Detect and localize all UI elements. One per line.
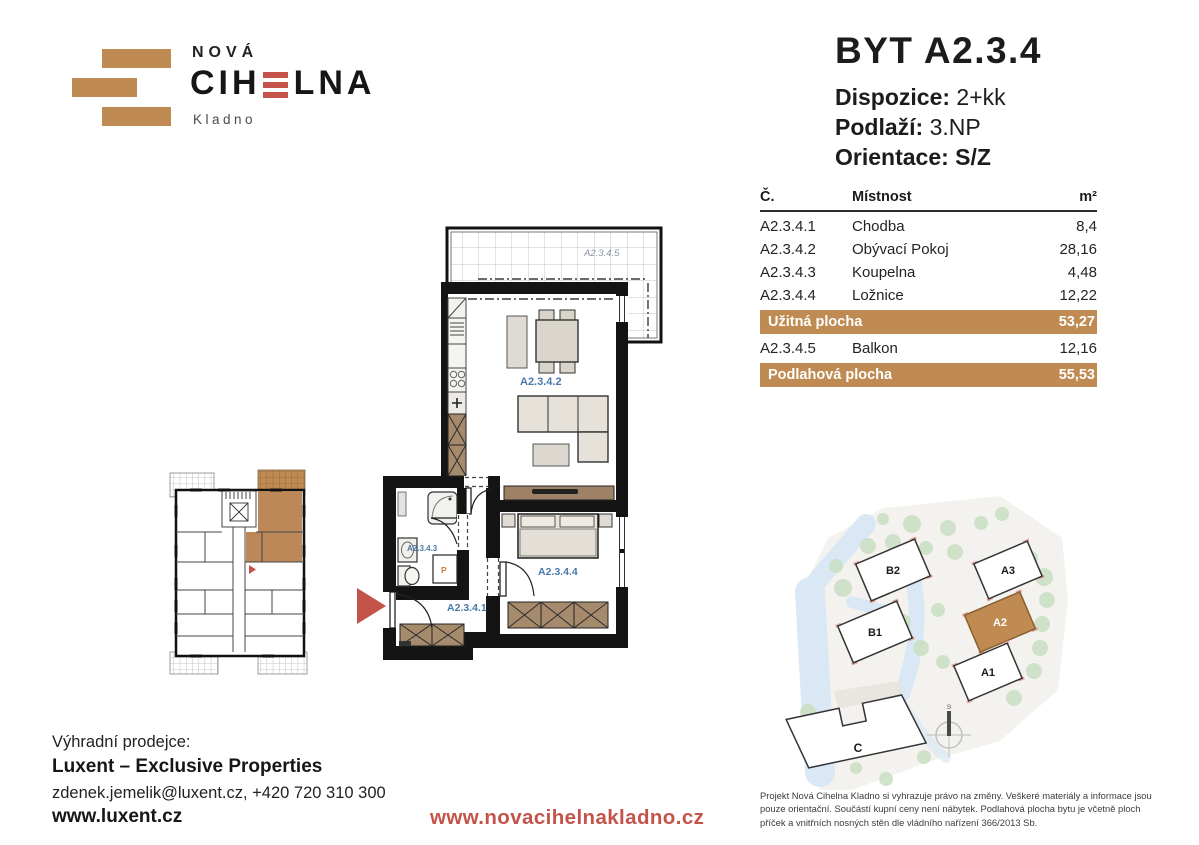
tv-cabinet [504, 486, 614, 500]
hallway-label: A2.3.4.1 [447, 602, 487, 614]
washer-label: P [441, 565, 447, 575]
disclaimer-text: Projekt Nová Cihelna Kladno si vyhrazuje… [760, 789, 1164, 829]
building-b1-label: B1 [868, 627, 882, 639]
drawings-layer: A2.3.4.5 [0, 0, 1199, 845]
compass-north-label: S [947, 704, 952, 711]
building-a3-label: A3 [1001, 565, 1015, 577]
kitchen-cabinets [448, 414, 466, 476]
balcony-label: A2.3.4.5 [583, 248, 620, 259]
seller-name: Luxent – Exclusive Properties [52, 756, 322, 778]
building-b2-label: B2 [886, 565, 900, 577]
site-map: B2 B1 A3 A2 A1 C S [782, 496, 1068, 790]
project-url-link[interactable]: www.novacihelnakladno.cz [430, 806, 704, 830]
seller-label: Výhradní prodejce: [52, 733, 191, 752]
luxent-url-link[interactable]: www.luxent.cz [52, 806, 182, 828]
flat-datasheet-page: NOVÁ CIH LNA Kladno BYT A2.3.4 Dispozice… [0, 0, 1199, 845]
floor-plan: A2.3.4.5 [357, 228, 661, 660]
mini-floor-plan [170, 470, 307, 674]
seller-contact: zdenek.jemelik@luxent.cz, +420 720 310 3… [52, 784, 386, 803]
living-room-label: A2.3.4.2 [520, 376, 562, 388]
building-a1-label: A1 [981, 667, 995, 679]
bedroom-label: A2.3.4.4 [538, 566, 578, 578]
kitchen [448, 298, 466, 414]
building-c-label: C [854, 741, 863, 755]
building-a2-label: A2 [993, 617, 1007, 629]
bathroom-label: A2.3.4.3 [407, 544, 438, 553]
entrance-arrow-icon [357, 588, 386, 624]
